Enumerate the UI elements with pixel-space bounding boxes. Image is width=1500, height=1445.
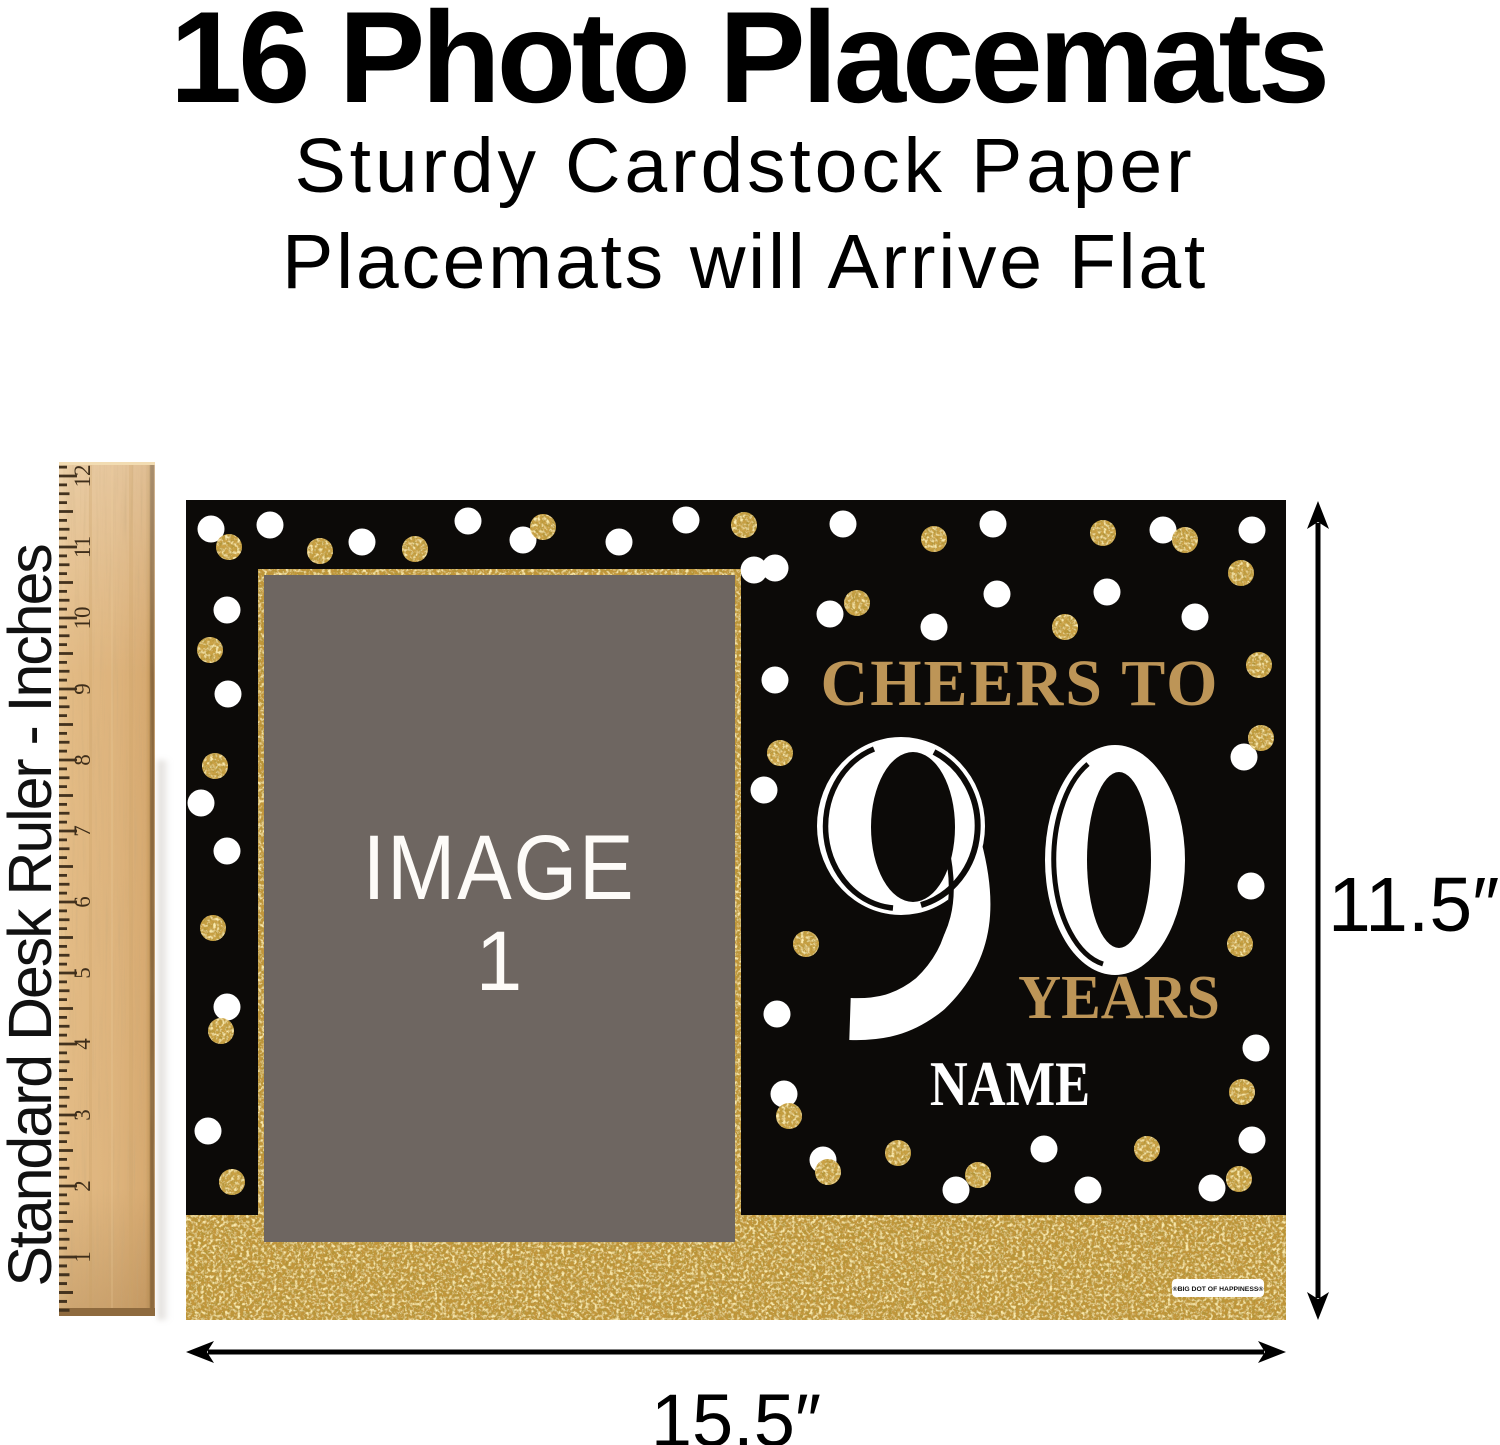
svg-text:CHEERS TO: CHEERS TO [821, 647, 1220, 720]
svg-text:Standard Desk Ruler - Inches: Standard Desk Ruler - Inches [0, 545, 60, 1287]
svg-text:4: 4 [70, 1038, 95, 1050]
svg-text:®BIG DOT OF HAPPINESS®: ®BIG DOT OF HAPPINESS® [1173, 1285, 1264, 1293]
svg-text:IMAGE: IMAGE [363, 817, 636, 919]
svg-text:6: 6 [70, 896, 95, 908]
svg-text:NAME: NAME [930, 1048, 1090, 1119]
svg-text:1: 1 [476, 914, 523, 1008]
svg-text:10: 10 [70, 607, 95, 630]
svg-text:3: 3 [70, 1109, 95, 1121]
svg-text:12: 12 [70, 465, 95, 488]
svg-text:1: 1 [70, 1251, 95, 1263]
svg-text:9: 9 [70, 683, 95, 695]
svg-text:11: 11 [70, 536, 95, 558]
svg-text:7: 7 [70, 825, 95, 837]
svg-text:YEARS: YEARS [1018, 964, 1220, 1032]
svg-text:8: 8 [70, 754, 95, 766]
svg-text:2: 2 [70, 1180, 95, 1192]
svg-text:5: 5 [70, 967, 95, 979]
